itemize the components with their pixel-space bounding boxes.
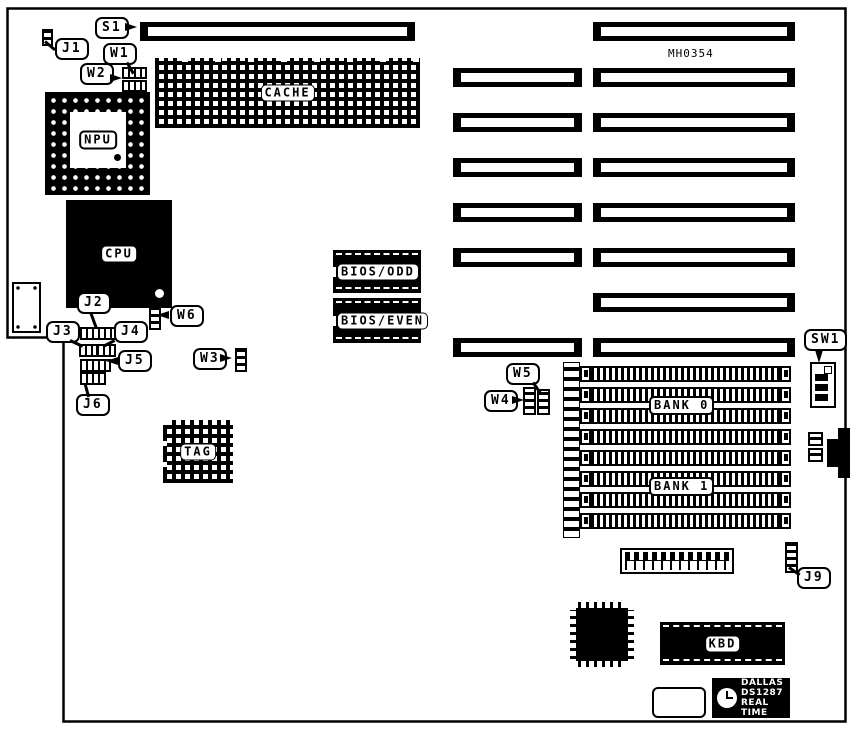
- sw1-switch-2: [815, 384, 828, 391]
- rtc-chip: DALLAS DS1287 REAL TIME: [712, 678, 790, 718]
- npu-label: NPU: [79, 131, 117, 150]
- simm-latch: [780, 387, 791, 403]
- sw1-switch-1: [815, 374, 828, 381]
- expansion-slot-long-4: [593, 158, 795, 177]
- simm-pins: [591, 429, 780, 445]
- header-pins-top: [625, 552, 729, 560]
- tag-chip-notches: [163, 420, 167, 483]
- clock-icon: [717, 688, 737, 708]
- expansion-slot-long-8: [593, 338, 795, 357]
- expansion-slot-short-6: [453, 338, 582, 357]
- simm-pins: [591, 366, 780, 382]
- slot-s1: [140, 22, 415, 41]
- simm-socket-5: [580, 450, 791, 466]
- simm-latch: [780, 513, 791, 529]
- bios-odd-notch: [332, 267, 336, 277]
- bank1-label: BANK 1: [649, 477, 714, 496]
- s1-callout: S1: [95, 17, 129, 39]
- rtc-text: DALLAS DS1287 REAL TIME: [741, 678, 790, 718]
- oscillator: [652, 687, 706, 718]
- j5-callout: J5: [118, 350, 152, 372]
- s1-pointer: [125, 23, 137, 31]
- cache-label: CACHE: [260, 85, 314, 102]
- cpu-pin1-dot: [155, 289, 164, 298]
- npu-pin1-dot: [114, 154, 121, 161]
- expansion-slot-long-1: [593, 22, 795, 41]
- cache-chip-notches: [155, 58, 420, 62]
- expansion-slot-long-2: [593, 68, 795, 87]
- simm-socket-8: [580, 513, 791, 529]
- rtc-brand: DALLAS: [741, 678, 790, 688]
- w1-callout: W1: [103, 43, 137, 65]
- j5-pointer: [106, 357, 118, 365]
- sw1-pointer: [815, 350, 823, 363]
- power-connector: [12, 282, 41, 333]
- header-pins-bottom: [625, 560, 729, 570]
- w6-pointer: [157, 311, 169, 319]
- bios-odd-chip: BIOS/ODD: [333, 250, 421, 293]
- cache-chip-array: CACHE: [155, 58, 420, 128]
- expansion-slot-short-4: [453, 203, 582, 222]
- tag-label: TAG: [180, 443, 216, 460]
- j6-callout: J6: [76, 394, 110, 416]
- simm-socket-1: [580, 366, 791, 382]
- simm-latch: [580, 492, 591, 508]
- kbd-controller-chip: KBD: [660, 622, 785, 665]
- expansion-slot-short-3: [453, 158, 582, 177]
- bank0-label: BANK 0: [649, 396, 714, 415]
- expansion-slot-short-2: [453, 113, 582, 132]
- simm-latch: [780, 471, 791, 487]
- simm-latch: [780, 450, 791, 466]
- simm-pins: [591, 450, 780, 466]
- j4-callout: J4: [114, 321, 148, 343]
- j1-callout: J1: [55, 38, 89, 60]
- simm-latch: [780, 492, 791, 508]
- expansion-slot-short-1: [453, 68, 582, 87]
- simm-latch: [580, 513, 591, 529]
- simm-pins: [591, 513, 780, 529]
- chipset-qfp-chip: [570, 602, 634, 667]
- expansion-slot-long-6: [593, 248, 795, 267]
- j3-callout: J3: [46, 321, 80, 343]
- rtc-model: DS1287: [741, 688, 790, 698]
- npu-socket-center: NPU: [70, 112, 126, 168]
- cpu-label: CPU: [101, 246, 137, 263]
- w2-callout: W2: [80, 63, 114, 85]
- w2-pointer: [110, 74, 122, 82]
- w4-jumper: [523, 387, 536, 415]
- simm-socket-4: [580, 429, 791, 445]
- expansion-slot-short-5: [453, 248, 582, 267]
- bios-even-notch: [332, 316, 336, 326]
- simm-latch: [780, 366, 791, 382]
- memory-pin-strip: [563, 362, 580, 538]
- sw1-position-marker: [824, 366, 832, 374]
- j9-callout: J9: [797, 567, 831, 589]
- simm-latch: [580, 471, 591, 487]
- din-pin-block-1: [808, 432, 823, 446]
- expansion-slot-long-3: [593, 113, 795, 132]
- simm-latch: [580, 450, 591, 466]
- din-pin-block-2: [808, 448, 823, 462]
- sw1-callout: SW1: [804, 329, 847, 351]
- j2-jumper: [80, 327, 117, 340]
- simm-latch: [780, 429, 791, 445]
- expansion-slot-long-5: [593, 203, 795, 222]
- w2-jumper: [122, 80, 147, 92]
- npu-socket: NPU: [45, 92, 150, 195]
- simm-latch: [780, 408, 791, 424]
- w3-jumper: [235, 348, 247, 372]
- simm-latch: [580, 408, 591, 424]
- rtc-tagline: REAL TIME: [741, 698, 790, 718]
- simm-latch: [580, 429, 591, 445]
- motherboard-diagram: MH0354 CACHE NPU CPU BIOS/ODD BIOS/EVEN …: [0, 0, 851, 731]
- board-part-number: MH0354: [668, 47, 714, 60]
- bios-odd-label: BIOS/ODD: [337, 263, 419, 280]
- kbd-label: KBD: [705, 635, 741, 652]
- simm-latch: [580, 387, 591, 403]
- bios-even-chip: BIOS/EVEN: [333, 298, 421, 343]
- j2-callout: J2: [77, 292, 111, 314]
- tag-chip-array: TAG: [163, 420, 233, 483]
- expansion-slot-long-7: [593, 293, 795, 312]
- w6-callout: W6: [170, 305, 204, 327]
- w4-pointer: [512, 396, 524, 404]
- sw1-dip-switch: [810, 362, 836, 408]
- w3-pointer: [220, 354, 232, 362]
- header-connector: [620, 548, 734, 574]
- simm-latch: [580, 366, 591, 382]
- sw1-switch-3: [815, 394, 828, 401]
- bios-even-label: BIOS/EVEN: [337, 312, 428, 329]
